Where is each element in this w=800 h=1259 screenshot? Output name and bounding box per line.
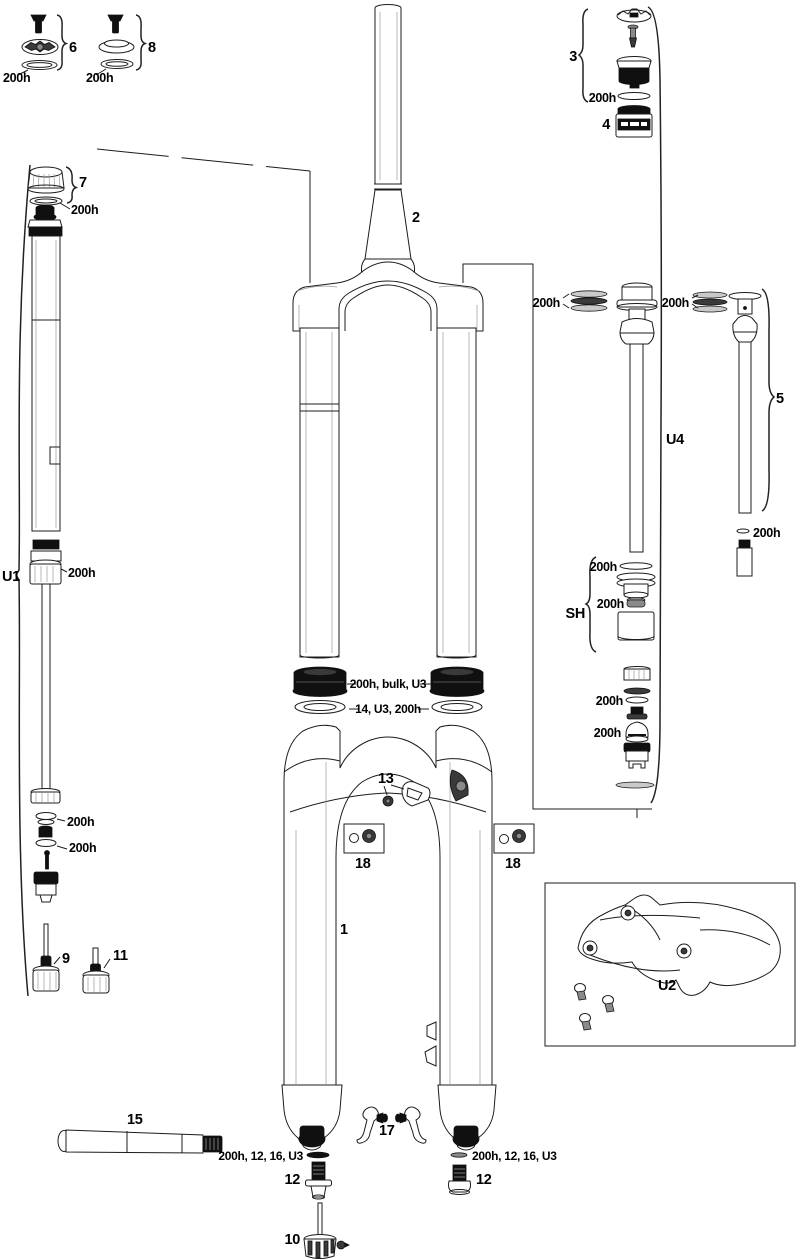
glide-rings-u4 xyxy=(563,291,607,311)
thru-axle-15 xyxy=(58,1130,222,1153)
lower-legs-1 xyxy=(282,725,496,1150)
air-shaft-u4 xyxy=(617,283,657,552)
parts-diagram-page: 200h 6 200h 8 7 200h U1 200h 200h 200h 9… xyxy=(0,0,800,1259)
screw-icon xyxy=(31,15,46,21)
callout-10: 10 xyxy=(284,1232,300,1248)
label-200h: 200h xyxy=(71,203,98,217)
brace-8 xyxy=(136,15,145,70)
label-200h: 200h xyxy=(594,726,621,740)
air-shaft-rod xyxy=(630,344,643,552)
washer xyxy=(36,813,56,820)
group-label-u2: U2 xyxy=(658,978,676,994)
base-plate xyxy=(616,782,654,788)
exploded-diagram-canvas: 200h 6 200h 8 7 200h U1 200h 200h 200h 9… xyxy=(0,0,800,1259)
label-200h: 200h xyxy=(86,71,113,85)
brace-6 xyxy=(57,15,66,70)
o-ring xyxy=(618,93,650,100)
label-200h: 200h xyxy=(589,91,616,105)
label-200h: 200h xyxy=(596,694,623,708)
screw-icon xyxy=(108,15,123,21)
token-canister-4 xyxy=(616,106,652,138)
air-spring-lower-stack xyxy=(616,667,654,789)
rebound-knob-9 xyxy=(33,924,60,991)
leader-line-airspring-to-crown xyxy=(463,264,652,818)
callout-12: 12 xyxy=(284,1172,300,1188)
label-crush-washer: 200h, 12, 16, U3 xyxy=(472,1149,557,1163)
label-200h: 200h xyxy=(662,296,689,310)
set-screw xyxy=(337,1241,345,1249)
callout-1: 1 xyxy=(340,922,348,938)
callout-2: 2 xyxy=(412,210,420,226)
brake-mount-tabs xyxy=(425,1022,436,1066)
label-200h: 200h xyxy=(597,597,624,611)
callout-5: 5 xyxy=(776,391,784,407)
damper-shaft xyxy=(42,584,50,790)
callout-13: 13 xyxy=(378,771,394,787)
left-stanchion xyxy=(300,328,339,658)
crush-washer xyxy=(307,1152,329,1158)
callout-3: 3 xyxy=(569,49,577,65)
top-cap-group-6 xyxy=(18,15,66,75)
hardware-box-18-right xyxy=(494,824,534,853)
label-200h: 200h xyxy=(533,296,560,310)
o-ring xyxy=(620,563,652,569)
fork-crown xyxy=(293,262,483,331)
fender-kit-box-u2 xyxy=(545,883,795,1046)
callout-6: 6 xyxy=(69,40,77,56)
brace-5 xyxy=(762,289,774,511)
top-cap-group-8 xyxy=(96,15,145,75)
group-label-u4: U4 xyxy=(666,432,684,448)
group-label-u1: U1 xyxy=(2,569,20,585)
callout-17: 17 xyxy=(379,1123,395,1139)
cartridge-collar xyxy=(29,227,62,236)
rebound-knob-10 xyxy=(304,1203,349,1259)
seal-head-body xyxy=(618,612,654,640)
callout-18: 18 xyxy=(355,856,371,872)
needle xyxy=(46,855,49,869)
callout-8: 8 xyxy=(148,40,156,56)
shaft-bolt-12-right xyxy=(449,1153,471,1195)
rebound-knob-11 xyxy=(83,948,110,993)
label-200h: 200h xyxy=(68,566,95,580)
piston xyxy=(39,828,52,837)
callout-7: 7 xyxy=(79,175,87,191)
spoked-washer xyxy=(624,688,650,694)
callout-9: 9 xyxy=(62,951,70,967)
right-stanchion xyxy=(437,328,476,658)
callout-11: 11 xyxy=(113,948,128,964)
label-dust-seal: 200h, bulk, U3 xyxy=(350,677,427,691)
air-top-cap-group-3 xyxy=(579,9,651,102)
label-200h: 200h xyxy=(3,71,30,85)
label-200h: 200h xyxy=(69,841,96,855)
shaft-end-piece xyxy=(737,548,752,576)
cable-clip-17-right xyxy=(396,1107,427,1143)
leader-line-damper-to-crown xyxy=(97,149,310,283)
label-crush-washer: 200h, 12, 16, U3 xyxy=(218,1149,303,1163)
o-ring xyxy=(36,840,56,847)
dust-seal-left xyxy=(293,667,347,697)
shaft-bolt-12-left xyxy=(306,1152,332,1199)
brace-7 xyxy=(66,167,76,203)
callout-18: 18 xyxy=(505,856,521,872)
callout-12: 12 xyxy=(476,1172,492,1188)
rebound-assembly xyxy=(34,872,58,884)
callout-15: 15 xyxy=(127,1112,143,1128)
hardware-box-18-left xyxy=(344,824,384,853)
callout-4: 4 xyxy=(602,117,610,133)
brace-3 xyxy=(579,9,588,102)
label-200h: 200h xyxy=(590,560,617,574)
group-label-sh: SH xyxy=(565,606,585,622)
crush-washer xyxy=(451,1153,467,1157)
label-foam-ring: 14, U3, 200h xyxy=(355,702,421,716)
dust-seal-right xyxy=(430,667,484,697)
label-200h: 200h xyxy=(753,526,780,540)
crown-steerer-assembly-2 xyxy=(293,5,483,332)
o-ring xyxy=(737,529,749,533)
damper-assembly-u1 xyxy=(16,165,76,996)
foam-ring-left xyxy=(295,701,345,714)
steerer-taper xyxy=(365,190,411,259)
label-200h: 200h xyxy=(67,815,94,829)
air-shaft-rod xyxy=(739,342,751,513)
foam-ring-right xyxy=(432,701,482,714)
